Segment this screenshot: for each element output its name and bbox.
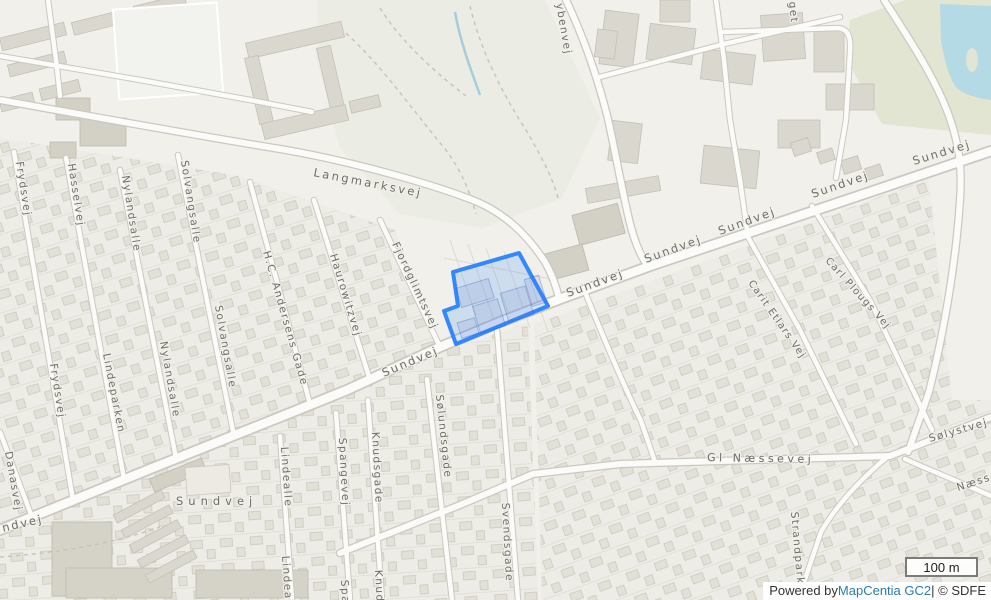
map-canvas[interactable]: FrydsvejHasselvejNylandsalleSolvangsalle… bbox=[0, 0, 991, 600]
street-label-vaenget-partial: get bbox=[786, 1, 800, 24]
scale-bar: 100 m bbox=[905, 557, 978, 577]
attribution-powered-by: Powered by bbox=[769, 583, 838, 598]
street-label-sundvej-south: Sundvej bbox=[176, 494, 257, 508]
attribution-copyright: | © SDFE bbox=[931, 583, 986, 598]
map-svg: FrydsvejHasselvejNylandsalleSolvangsalle… bbox=[0, 0, 991, 600]
mapcentia-link[interactable]: MapCentia GC2 bbox=[838, 583, 931, 598]
pond-island bbox=[966, 48, 978, 72]
street-label-gl-naessevej: Gl Næssevej bbox=[707, 451, 814, 466]
scale-bar-label: 100 m bbox=[923, 561, 959, 574]
attribution-bar: Powered by MapCentia GC2 | © SDFE bbox=[763, 582, 991, 600]
